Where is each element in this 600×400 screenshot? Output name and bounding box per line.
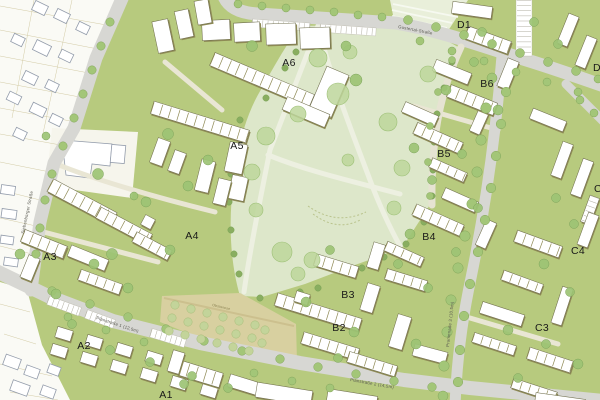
district-label-a6: A6 xyxy=(282,57,295,69)
district-label-b2: B2 xyxy=(332,322,345,334)
site-plan-map[interactable]: A1 A2 A3 A4 A5 A6 B2 B3 B4 B5 B6 C3 C4 C… xyxy=(0,0,600,400)
district-label-a3: A3 xyxy=(43,251,56,263)
district-label-c3: C3 xyxy=(535,322,549,334)
building xyxy=(300,27,332,50)
district-label-b4: B4 xyxy=(422,231,435,243)
district-label-d1: D1 xyxy=(457,19,471,31)
building xyxy=(266,23,298,46)
district-label-d2: D2 xyxy=(593,62,600,74)
district-label-a1: A1 xyxy=(159,389,172,400)
district-label-c5: C5 xyxy=(594,183,600,195)
district-label-b5: B5 xyxy=(437,148,450,160)
district-label-b6: B6 xyxy=(480,78,493,90)
district-label-c4: C4 xyxy=(571,245,585,257)
district-label-b3: B3 xyxy=(341,289,354,301)
district-label-a4: A4 xyxy=(185,230,198,242)
building xyxy=(234,22,262,44)
site-plan-svg: A1 A2 A3 A4 A5 A6 B2 B3 B4 B5 B6 C3 C4 C… xyxy=(0,0,600,400)
district-label-a2: A2 xyxy=(77,340,90,352)
district-label-a5: A5 xyxy=(230,140,243,152)
